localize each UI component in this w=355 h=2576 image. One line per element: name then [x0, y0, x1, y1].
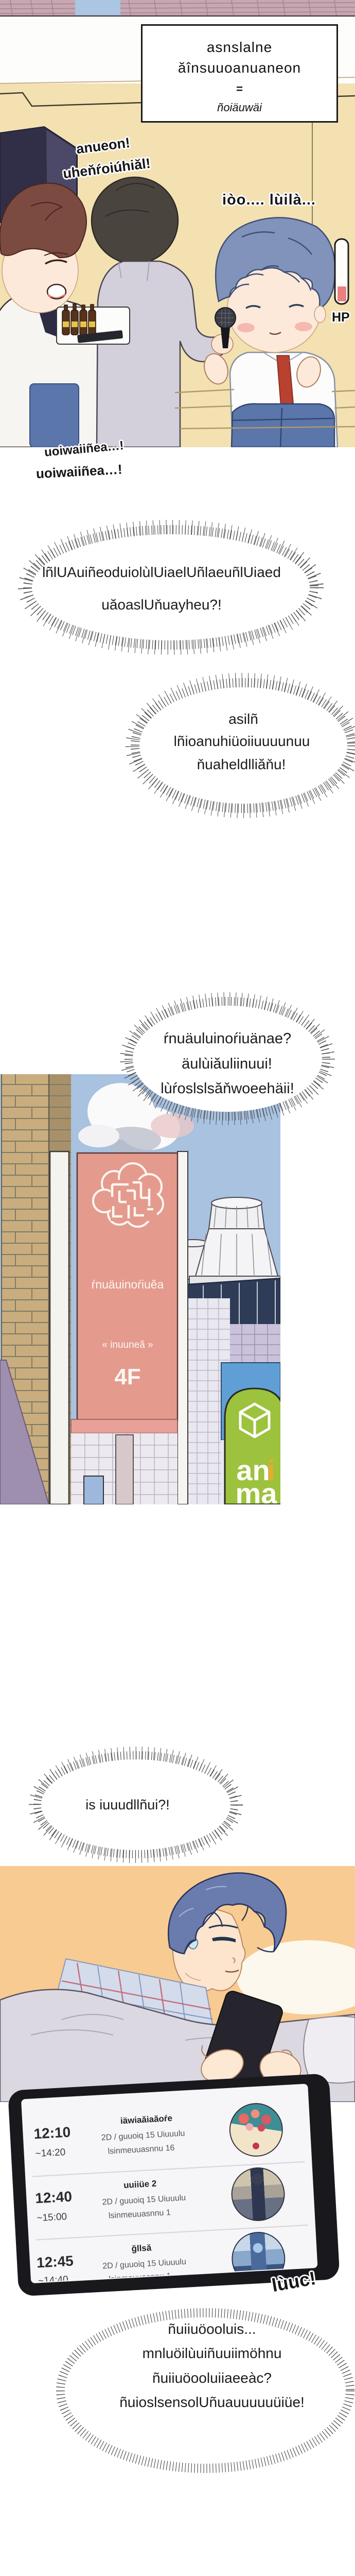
- svg-text:HP: HP: [332, 310, 350, 325]
- svg-text:ma: ma: [236, 1477, 278, 1504]
